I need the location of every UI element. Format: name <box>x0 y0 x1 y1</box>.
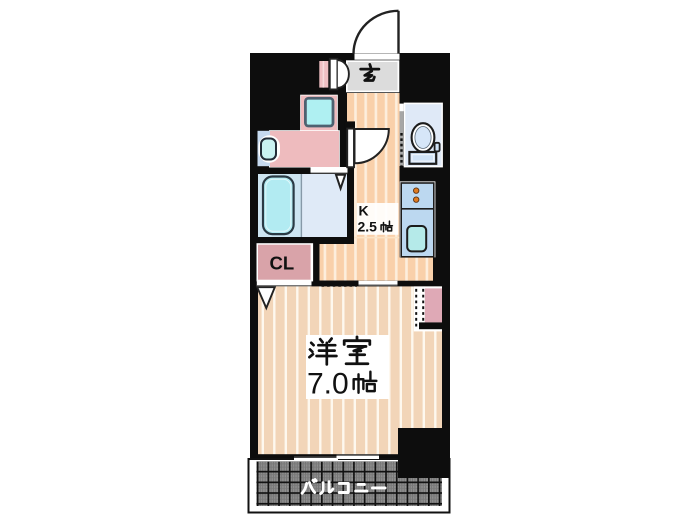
svg-text:K: K <box>359 203 369 219</box>
svg-text:7.0: 7.0 <box>307 368 349 401</box>
svg-text:2.5: 2.5 <box>358 219 378 235</box>
svg-text:CL: CL <box>270 252 295 273</box>
